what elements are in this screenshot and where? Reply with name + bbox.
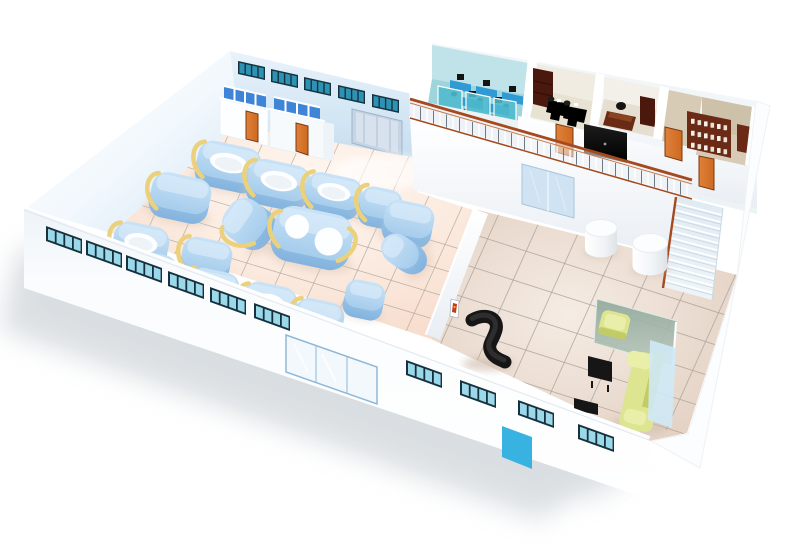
binder <box>704 133 708 138</box>
window-pane <box>273 71 278 82</box>
office-chair <box>548 96 555 101</box>
window-pane <box>374 96 379 107</box>
window-pane <box>346 88 351 99</box>
curtain-glass-wall <box>648 340 676 428</box>
orange-door <box>665 127 682 161</box>
binder <box>691 143 695 148</box>
round-stool <box>583 220 619 259</box>
monitor <box>457 74 464 80</box>
window-pane <box>359 91 364 102</box>
window-pane <box>240 63 245 74</box>
window-pane <box>318 82 323 93</box>
binder <box>698 132 702 137</box>
window-pane <box>292 75 297 86</box>
monitor <box>557 99 561 102</box>
binder <box>717 124 721 129</box>
binder <box>691 131 695 136</box>
window-pane <box>285 74 290 85</box>
window-pane <box>259 67 264 78</box>
binder <box>724 149 728 154</box>
orange-door <box>246 111 258 142</box>
monitor <box>574 103 578 106</box>
changing-room-side <box>324 122 334 161</box>
window-pane <box>380 97 385 108</box>
chair <box>567 114 578 127</box>
binder <box>698 120 702 125</box>
binder <box>717 148 721 153</box>
monitor <box>509 86 516 92</box>
binder <box>717 136 721 141</box>
binder <box>691 119 695 124</box>
chair <box>550 108 561 121</box>
window-pane <box>306 79 311 90</box>
window-pane <box>386 99 391 110</box>
cabinet <box>640 96 655 127</box>
floorplan-stage <box>0 0 800 550</box>
window-pane <box>279 72 284 83</box>
window-pane <box>325 83 330 94</box>
orange-door <box>296 123 308 155</box>
binder <box>704 145 708 150</box>
binder <box>724 137 728 142</box>
round-stool <box>630 234 670 276</box>
office-chair <box>564 100 571 105</box>
window-pane <box>246 64 251 75</box>
binder <box>711 135 715 140</box>
binder <box>711 123 715 128</box>
binder <box>698 144 702 149</box>
window-pane <box>252 66 257 77</box>
board-logo <box>604 143 607 146</box>
window-pane <box>352 90 357 101</box>
binder <box>724 125 728 130</box>
window-pane <box>312 80 317 91</box>
monitor <box>483 80 490 86</box>
window-pane <box>340 87 345 98</box>
wall-poster <box>450 299 459 318</box>
floorplan-render <box>0 0 800 550</box>
binder <box>711 147 715 152</box>
binder <box>704 121 708 126</box>
window-pane <box>393 100 398 111</box>
orange-door <box>699 156 714 190</box>
office-chair <box>616 102 626 110</box>
